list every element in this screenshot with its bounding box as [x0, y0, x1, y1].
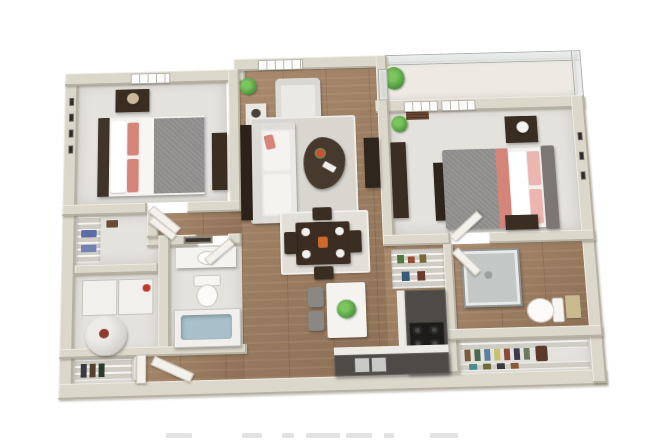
wall-bedroom1-living	[228, 69, 241, 211]
bedroom2-frame-2	[577, 150, 586, 162]
wall-bedroom2-bottom-a	[383, 233, 451, 246]
caption-fragment	[166, 433, 192, 438]
wall-bedroom1-bottom-a	[62, 203, 147, 216]
bath1-tub-water	[181, 314, 232, 340]
dining-chair-left	[284, 232, 297, 255]
closet-garment-3	[484, 349, 491, 361]
bedroom1-headboard	[97, 118, 110, 197]
bedroom2-nightstand-bottom	[505, 214, 539, 230]
caption-fragment	[430, 433, 458, 438]
linen-closet-shelves	[77, 217, 101, 264]
caption-fragment	[242, 433, 262, 438]
closet-shoe-1	[469, 364, 477, 370]
bedroom1-frame-1	[67, 96, 76, 108]
entry-coat-3	[98, 363, 104, 377]
bedroom1-pillow-coral-1	[127, 122, 139, 155]
island-stool-2	[308, 311, 324, 331]
dining-chair-bottom	[314, 266, 334, 280]
bedroom1-frame-2	[67, 112, 76, 124]
bedroom1-dresser	[212, 133, 228, 191]
bath2-shower	[461, 248, 523, 308]
living-window	[258, 59, 303, 70]
closet-shoe-2	[483, 364, 491, 370]
bedroom2-window-2	[441, 100, 475, 111]
kitchen-counter-horizontal	[334, 352, 450, 376]
closet-shoe-3	[497, 363, 505, 369]
dining-centerpiece	[318, 237, 328, 248]
entry-closet-door	[136, 355, 146, 384]
pantry-item-1	[397, 255, 404, 264]
bedroom2-frame-1	[575, 130, 584, 142]
bedroom1-duvet-gray	[154, 117, 205, 193]
closet-garment-4	[494, 349, 501, 361]
closet-garment-2	[474, 349, 481, 361]
linen-basket	[106, 220, 118, 228]
wall-laundry-bath1	[158, 235, 170, 352]
closet-shoe-4	[511, 363, 519, 369]
bath1-mirror	[184, 236, 213, 244]
pantry-item-5	[417, 271, 425, 281]
closet-garment-6	[514, 348, 521, 360]
bedroom1-frame-3	[67, 128, 76, 140]
bedroom1-sheet-fold	[140, 119, 154, 194]
entry-coat-2	[90, 364, 96, 378]
bedroom2-pillow-pink-1	[527, 151, 542, 185]
dining-chair-top	[312, 207, 332, 220]
pantry-item-2	[408, 256, 415, 263]
bedroom2-wall-art	[406, 111, 429, 120]
bath2-towels	[565, 295, 581, 318]
bedroom2-frame-3	[578, 170, 588, 182]
floor-plan-image	[0, 0, 650, 440]
bedroom1-pillow-coral-2	[127, 159, 139, 193]
island-stool-1	[308, 287, 324, 307]
bedroom1-frame-4	[66, 144, 75, 156]
entry-coat-1	[81, 364, 87, 378]
sofa-cushion-2	[264, 174, 292, 215]
bedroom1-window	[131, 73, 170, 84]
balcony-slider-glass	[378, 69, 389, 101]
linen-towels-blue-2	[81, 245, 97, 253]
caption-fragment	[346, 433, 372, 438]
kitchen-sink-basin-1	[354, 357, 370, 373]
laundry-washer	[82, 279, 118, 316]
dining-chair-right	[349, 230, 362, 252]
wall-bedroom1-bottom-b	[187, 200, 241, 212]
kitchen-sink-basin-2	[371, 357, 387, 373]
closet-garment-5	[504, 349, 511, 361]
bedroom2-window-1	[404, 101, 438, 112]
pantry-item-3	[419, 254, 426, 263]
floor-plan-stage	[0, 27, 650, 440]
closet-bag	[535, 346, 548, 362]
caption-fragment	[384, 433, 394, 438]
living-media-console	[364, 137, 381, 188]
caption-fragment	[282, 433, 294, 438]
closet-garment-1	[464, 350, 471, 362]
caption-fragment	[306, 433, 340, 438]
bedroom1-pillows-white	[111, 121, 127, 193]
closet-garment-7	[523, 348, 530, 360]
pantry-item-4	[402, 272, 410, 282]
linen-towels-blue-1	[81, 230, 97, 238]
